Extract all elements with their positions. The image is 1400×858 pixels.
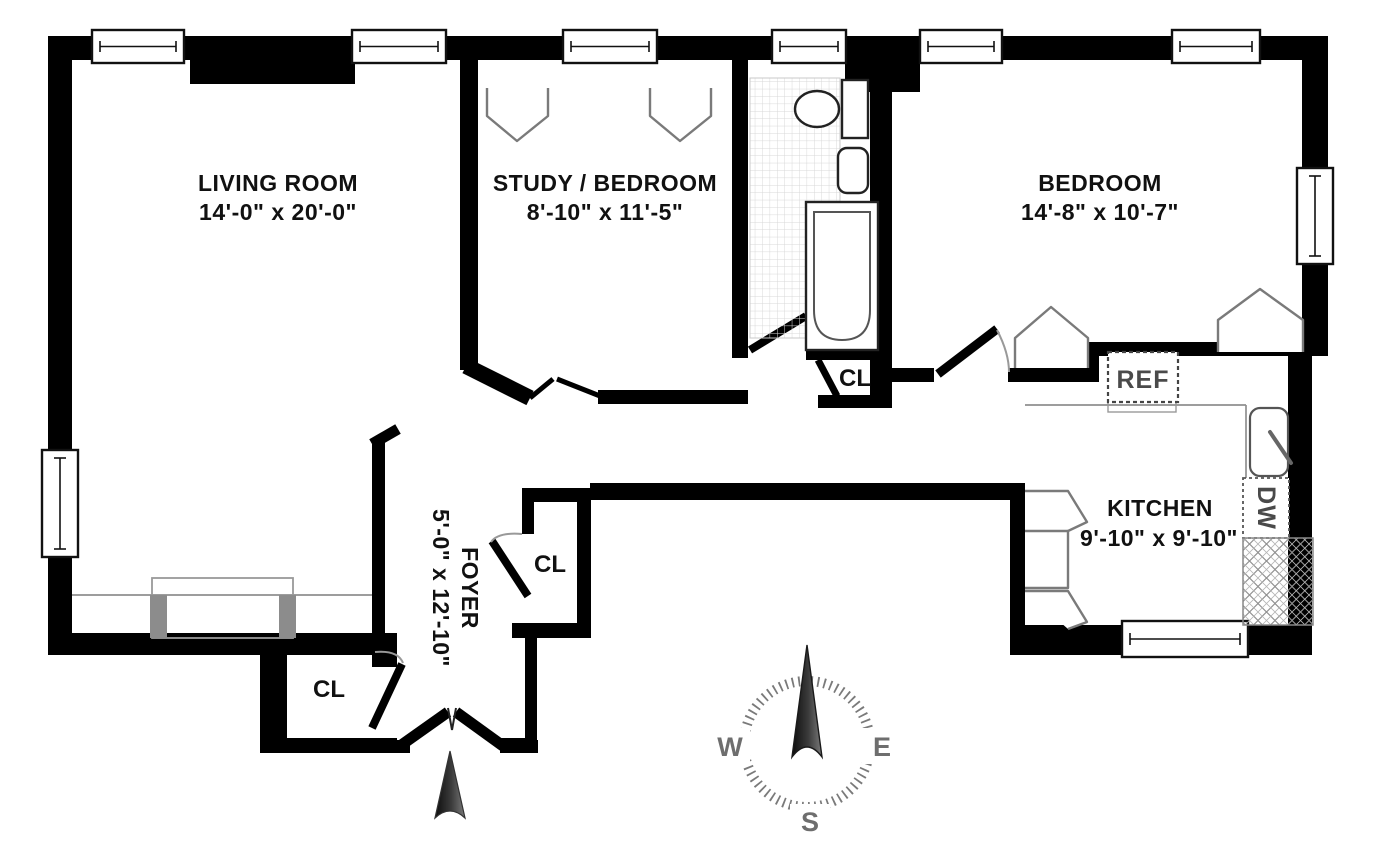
window [1172, 30, 1260, 63]
entry-closet-door-leaf [372, 664, 402, 728]
closet-door-icon [1015, 307, 1088, 368]
compass-west: W [717, 732, 743, 762]
room-label-foyer: FOYER [457, 547, 483, 629]
closet-door-icon [650, 88, 711, 141]
entry-door-leaf-right [456, 712, 503, 746]
entry-door-meeting-mark [448, 708, 456, 730]
closet-door-icon [487, 88, 548, 141]
bath-closet-door-leaf [818, 360, 837, 396]
closet-door-icon [1025, 531, 1068, 588]
bedroom-door-leaf [938, 329, 997, 374]
radiator-post [150, 595, 167, 638]
window [92, 30, 184, 63]
window-seat [152, 578, 293, 638]
room-label-kitchen: KITCHEN [1107, 495, 1213, 521]
foyer-closet-door-leaf [492, 541, 528, 596]
foyer-label-group: FOYER 5'-0" x 12'-10" [428, 509, 483, 667]
compass-east: E [873, 732, 891, 762]
closet-door-icon [1025, 591, 1087, 629]
room-label-study: STUDY / BEDROOM [493, 170, 717, 196]
toilet-icon [838, 148, 868, 193]
kitchen-sink-icon [1250, 408, 1288, 476]
compass-south: S [801, 807, 819, 837]
dishwasher-label: DW [1252, 486, 1280, 530]
window [920, 30, 1002, 63]
window [1122, 621, 1248, 657]
room-dims-study: 8'-10" x 11'-5" [527, 199, 684, 225]
floor-plan: W E S LIVING ROOM 14'-0" x 20'-0" STUDY … [0, 0, 1400, 858]
wall-pier [190, 60, 355, 84]
room-dims-kitchen: 9'-10" x 9'-10" [1080, 525, 1238, 551]
closet-label-bath: CL [839, 365, 871, 392]
vanity [842, 80, 868, 138]
window [352, 30, 446, 63]
closet-door-icon [1025, 491, 1087, 531]
north-needle-icon [792, 645, 822, 757]
living-room-details [72, 578, 372, 638]
compass: W E S [710, 645, 902, 840]
window [42, 450, 78, 557]
bathtub-inner [814, 212, 870, 340]
radiator-post [279, 595, 296, 638]
bedroom-door-arc [997, 330, 1009, 372]
room-dims-living: 14'-0" x 20'-0" [199, 199, 357, 225]
range-icon [1243, 538, 1313, 625]
wall-angled-cap [372, 429, 398, 444]
window [563, 30, 657, 63]
entry-door-leaf-left [400, 712, 448, 746]
sink-icon [795, 91, 839, 127]
room-label-living: LIVING ROOM [198, 170, 358, 196]
window [1297, 168, 1333, 264]
room-dims-foyer: 5'-0" x 12'-10" [428, 509, 454, 667]
closet-label-foyer: CL [534, 551, 566, 578]
refrigerator-label: REF [1117, 366, 1170, 394]
entrance-arrow-icon [435, 751, 465, 818]
closet-door-icon [1218, 289, 1303, 352]
room-label-bedroom: BEDROOM [1038, 170, 1162, 196]
dishwasher-label-group: DW [1252, 486, 1280, 530]
window [772, 30, 846, 63]
room-dims-bedroom: 14'-8" x 10'-7" [1021, 199, 1179, 225]
closet-label-entry: CL [313, 676, 345, 703]
floor-plan-svg: W E S LIVING ROOM 14'-0" x 20'-0" STUDY … [0, 0, 1400, 858]
bathroom [750, 78, 878, 350]
